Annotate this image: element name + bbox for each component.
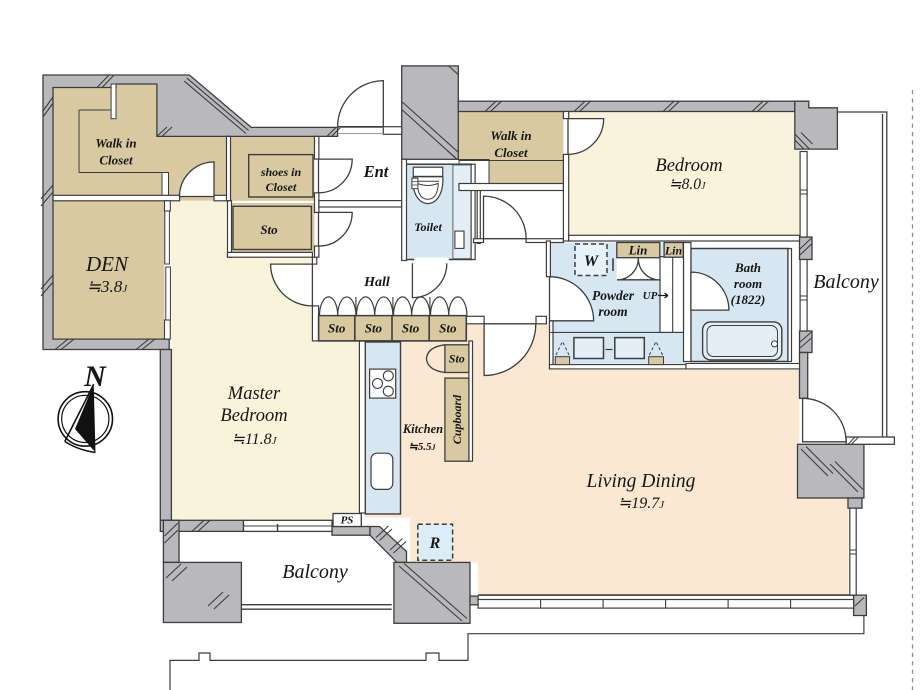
svg-text:Sto: Sto [449, 352, 465, 366]
svg-text:Walk in: Walk in [490, 128, 531, 143]
svg-text:Kitchen: Kitchen [402, 422, 443, 436]
svg-text:Sto: Sto [402, 321, 420, 336]
svg-text:W: W [584, 253, 600, 270]
svg-text:Closet: Closet [99, 153, 133, 168]
svg-text:Closet: Closet [494, 145, 528, 160]
svg-text:Toilet: Toilet [414, 220, 442, 234]
svg-text:Master: Master [227, 384, 281, 404]
svg-text:Powder: Powder [592, 288, 635, 303]
svg-text:Sto: Sto [328, 321, 346, 336]
svg-text:DEN: DEN [85, 252, 129, 276]
svg-text:Hall: Hall [363, 275, 390, 290]
svg-text:UP: UP [643, 290, 658, 302]
svg-text:room: room [598, 304, 627, 319]
svg-text:Living Dining: Living Dining [586, 471, 696, 492]
svg-text:Balcony: Balcony [813, 271, 879, 293]
svg-text:Bedroom: Bedroom [220, 406, 287, 426]
svg-text:PS: PS [341, 515, 354, 527]
svg-text:Lin: Lin [664, 244, 683, 258]
svg-text:≒3.8J: ≒3.8J [87, 277, 129, 296]
svg-text:Sto: Sto [365, 321, 383, 336]
svg-text:Closet: Closet [266, 180, 297, 194]
svg-text:≒8.0J: ≒8.0J [669, 176, 706, 193]
svg-text:Cupboard: Cupboard [450, 394, 464, 444]
svg-text:R: R [429, 535, 441, 552]
svg-text:Bath: Bath [734, 260, 761, 275]
svg-text:≒5.5J: ≒5.5J [409, 441, 437, 453]
svg-text:≒19.7J: ≒19.7J [618, 495, 665, 512]
svg-text:Sto: Sto [439, 321, 457, 336]
svg-text:shoes in: shoes in [260, 165, 302, 179]
svg-text:Bedroom: Bedroom [655, 156, 722, 176]
svg-text:Lin: Lin [628, 243, 648, 258]
svg-text:Sto: Sto [260, 222, 278, 237]
svg-text:Ent: Ent [363, 162, 389, 181]
svg-text:Balcony: Balcony [282, 561, 348, 583]
svg-text:Walk in: Walk in [95, 136, 136, 151]
svg-text:room: room [734, 276, 762, 291]
svg-text:N: N [83, 360, 107, 393]
svg-text:≒11.8J: ≒11.8J [231, 431, 277, 448]
svg-text:(1822): (1822) [731, 292, 766, 307]
